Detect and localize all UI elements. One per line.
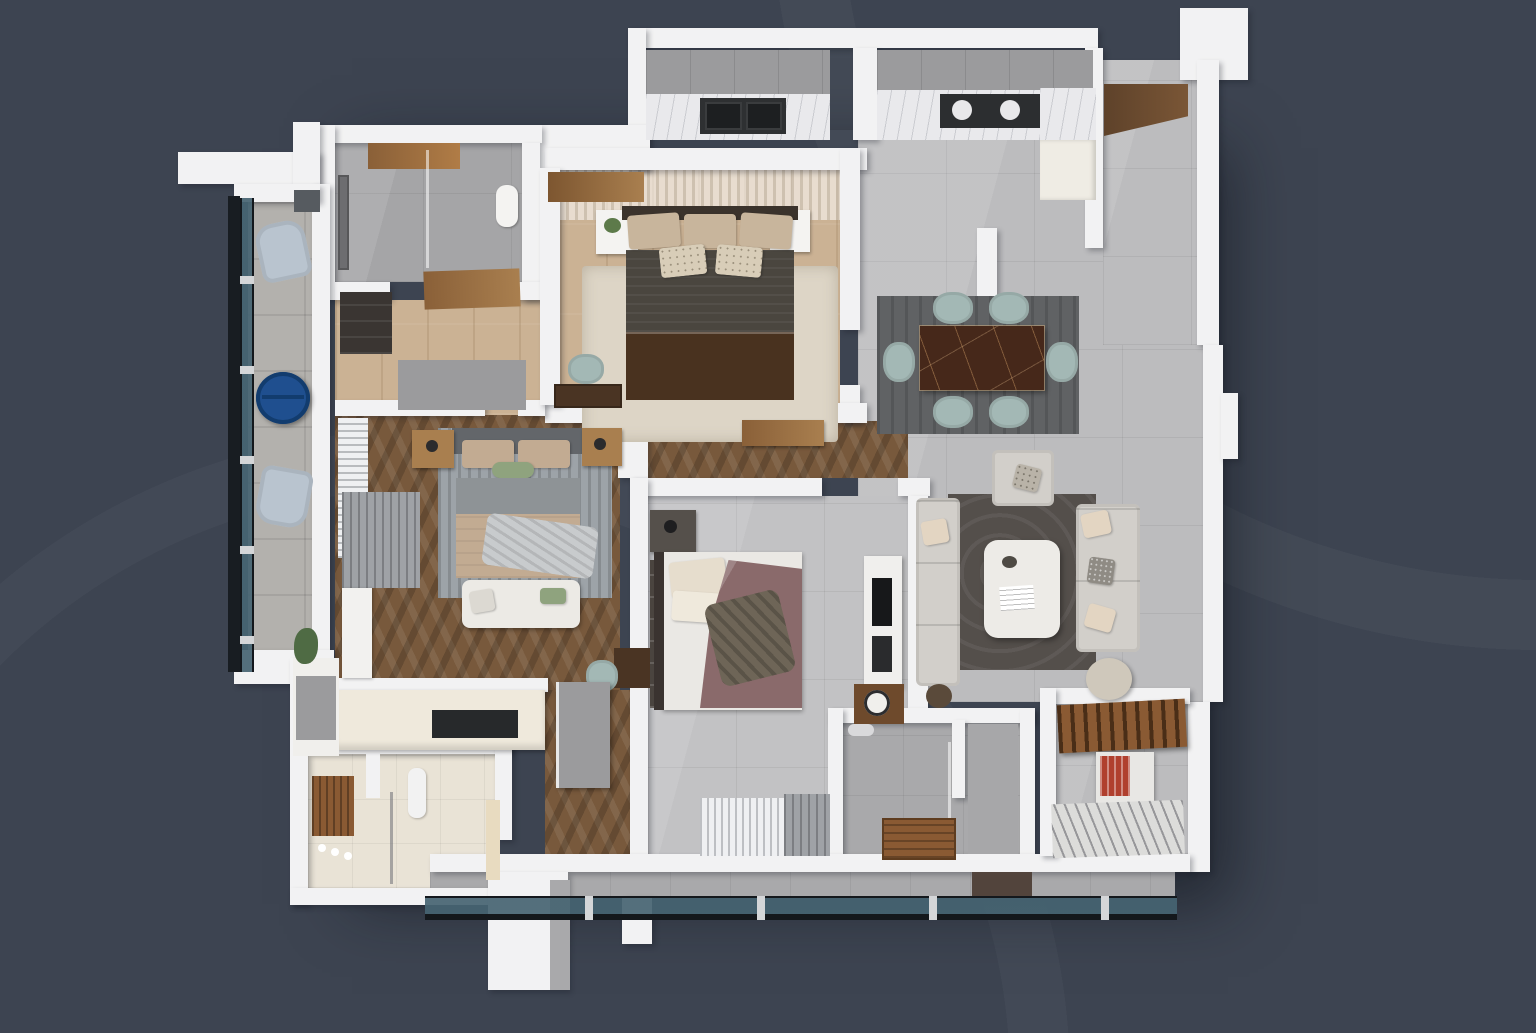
- master-desk: [554, 384, 622, 408]
- wall-bathroom-1-top: [318, 125, 542, 143]
- living-side-table: [1086, 658, 1132, 700]
- bedroom-2-bed-gray-band: [456, 478, 580, 514]
- dining-chair-right: [1046, 342, 1078, 382]
- floor-plan-canvas: [0, 0, 1536, 1033]
- living-sofa-right-pillow-2: [1086, 556, 1115, 585]
- kitchen-upper-cabinets-left: [646, 50, 830, 94]
- wall-dressing-master: [540, 168, 560, 405]
- utility-red-books: [1100, 756, 1130, 796]
- dining-table: [920, 326, 1044, 390]
- balcony-outer-glass: [228, 196, 240, 672]
- bedroom-3-clock: [864, 690, 890, 716]
- wall-dining-stub: [977, 228, 997, 303]
- balcony-vent: [294, 190, 320, 212]
- master-bed-blanket-lower: [626, 332, 794, 400]
- bathroom-1-toilet: [496, 185, 518, 227]
- master-desk-chair: [568, 354, 604, 384]
- dining-chair-bottom-1: [933, 396, 973, 428]
- master-pillow-accent-2: [715, 244, 763, 278]
- kitchen-tall-cabinet: [1040, 140, 1096, 200]
- balcony-plant: [294, 628, 318, 664]
- dining-chair-left: [883, 342, 915, 382]
- utility-drying-rack: [1051, 800, 1185, 859]
- bathroom-1-wood-ceiling-panel: [368, 143, 460, 169]
- living-coffee-table-decor: [1002, 556, 1017, 568]
- balcony-doormat: [972, 872, 1032, 896]
- master-pillow-accent-1: [659, 244, 708, 279]
- bathroom-1-glass-partition: [426, 150, 429, 268]
- living-tv-screen: [872, 578, 892, 626]
- wall-master-top: [545, 148, 867, 170]
- bedroom-2-green-pillow: [492, 462, 534, 478]
- bedroom-2-lamp-left: [426, 440, 438, 452]
- master-wood-beam: [548, 172, 644, 202]
- living-plant: [926, 684, 952, 708]
- wall-master-right-a: [840, 148, 860, 330]
- bedroom-2-white-wardrobe: [342, 588, 372, 678]
- kitchen-counter-column: [1040, 88, 1096, 142]
- wall-shower-stub: [952, 720, 965, 798]
- dressing-wood-door-panel: [423, 268, 520, 309]
- wall-right-upper: [1197, 60, 1219, 345]
- bedroom-2-bench-pillow-2: [540, 588, 566, 604]
- bedroom-3-curtain-white: [700, 798, 784, 856]
- kitchen-burner-2: [1000, 100, 1020, 120]
- bathroom-2-fixture-1: [318, 844, 326, 852]
- wall-bedroom-3-top-a: [630, 478, 822, 496]
- bedroom-2-bench-pillow-1: [468, 588, 495, 614]
- dining-chair-bottom-2: [989, 396, 1029, 428]
- master-pillow-3: [739, 212, 793, 250]
- dining-chair-top-1: [933, 292, 973, 324]
- wall-right-bump: [1221, 393, 1238, 459]
- bathroom-2-cream-column: [486, 800, 500, 880]
- bathroom-1-shower-panel: [338, 175, 349, 270]
- kitchenette-cooktop: [432, 710, 518, 738]
- shower-wood-mat: [884, 820, 954, 858]
- shower-niche-floor: [968, 724, 1018, 854]
- dressing-dark-wardrobe: [340, 292, 392, 354]
- bedroom-3-gray-wardrobe: [556, 682, 610, 788]
- bedroom-3-curtain-gray: [784, 794, 830, 856]
- balcony-glass-railing: [240, 198, 254, 672]
- wall-kitchen-divider: [853, 48, 877, 140]
- bathroom-2-towel-rail: [408, 768, 426, 818]
- bedroom-2-lamp-right: [594, 438, 606, 450]
- bathroom-2-fixture-2: [331, 848, 339, 856]
- wall-blade-join: [293, 122, 320, 184]
- master-pillow-2: [684, 214, 736, 248]
- master-pillow-1: [627, 212, 681, 250]
- kitchenette-cabinet-gray-front: [296, 676, 336, 740]
- bedroom-3-bed-frame-edge: [654, 552, 664, 710]
- corridor-console: [742, 420, 824, 446]
- bottom-balcony-glass-railing: [425, 896, 1177, 920]
- wall-kitchen-top: [628, 28, 1098, 48]
- kitchen-sink-basin-left: [705, 102, 742, 130]
- wall-shower-right: [1020, 708, 1035, 856]
- bathroom-2-glass-partition: [390, 792, 393, 884]
- bathroom-2-wood-panel: [312, 776, 354, 836]
- kitchen-burner-1: [952, 100, 972, 120]
- living-coffee-table-magazine: [999, 585, 1035, 611]
- kitchen-sink-basin-right: [746, 102, 782, 130]
- bedroom-3-lamp: [664, 520, 677, 533]
- utility-wood-slat-shelf: [1057, 699, 1187, 754]
- wall-right-mid: [1203, 345, 1223, 702]
- wall-right-lower: [1188, 702, 1210, 872]
- wall-shower-left: [828, 708, 843, 856]
- living-sofa-left-pillow: [920, 518, 950, 546]
- wall-bedroom-3-top-b: [898, 478, 930, 496]
- master-nightstand-plant: [604, 218, 621, 233]
- wall-bathroom-1-right: [522, 143, 540, 300]
- kitchen-upper-cabinets-right: [877, 50, 1093, 90]
- living-tv-lower-panel: [872, 636, 892, 672]
- shower-head: [848, 724, 874, 736]
- balcony-blue-table-cross: [262, 395, 304, 399]
- bedroom-2-curtain-gray: [342, 492, 420, 588]
- wall-balcony-inner: [312, 184, 330, 690]
- dressing-gray-partition: [398, 360, 526, 410]
- bathroom-2-fixture-3: [344, 852, 352, 860]
- bedroom-2-desk: [614, 648, 654, 688]
- master-bed-blanket-upper: [626, 250, 794, 332]
- dining-chair-top-2: [989, 292, 1029, 324]
